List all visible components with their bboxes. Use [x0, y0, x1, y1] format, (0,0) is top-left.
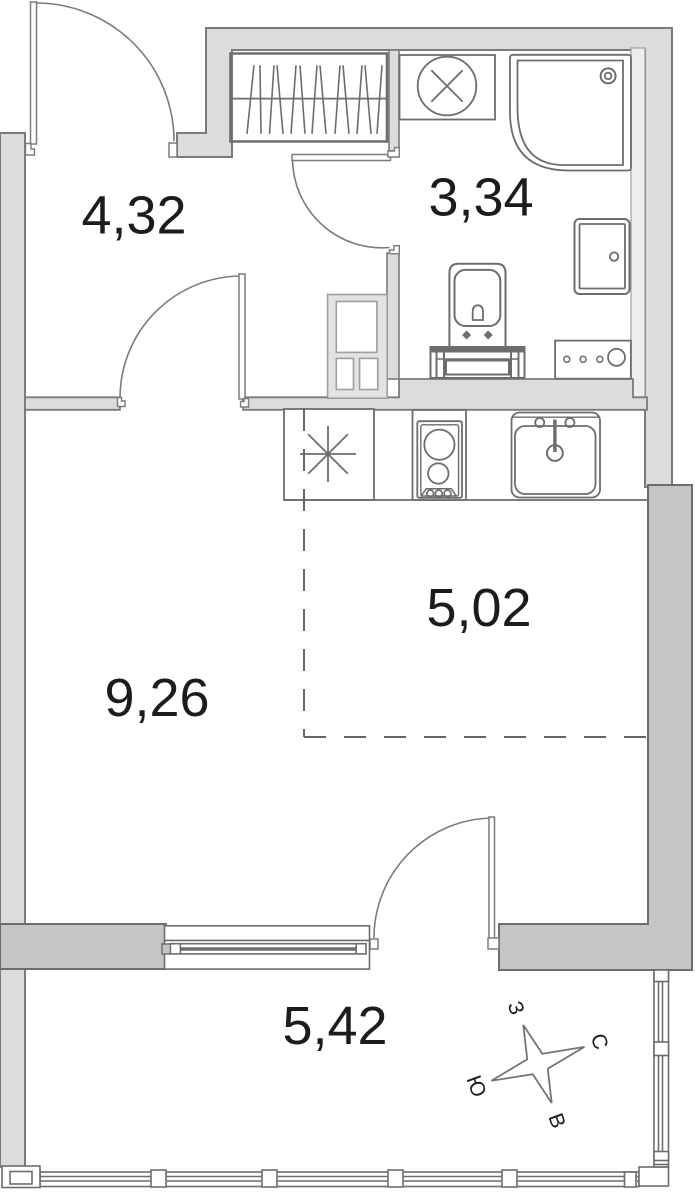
svg-text:4,32: 4,32: [81, 186, 186, 246]
svg-text:5,02: 5,02: [426, 578, 531, 638]
svg-text:5,42: 5,42: [282, 996, 387, 1056]
svg-text:В: В: [543, 1110, 569, 1131]
svg-text:З: З: [503, 998, 529, 1018]
svg-text:С: С: [586, 1031, 613, 1053]
svg-text:3,34: 3,34: [428, 168, 533, 228]
svg-text:Ю: Ю: [462, 1072, 491, 1100]
svg-text:9,26: 9,26: [104, 668, 209, 728]
